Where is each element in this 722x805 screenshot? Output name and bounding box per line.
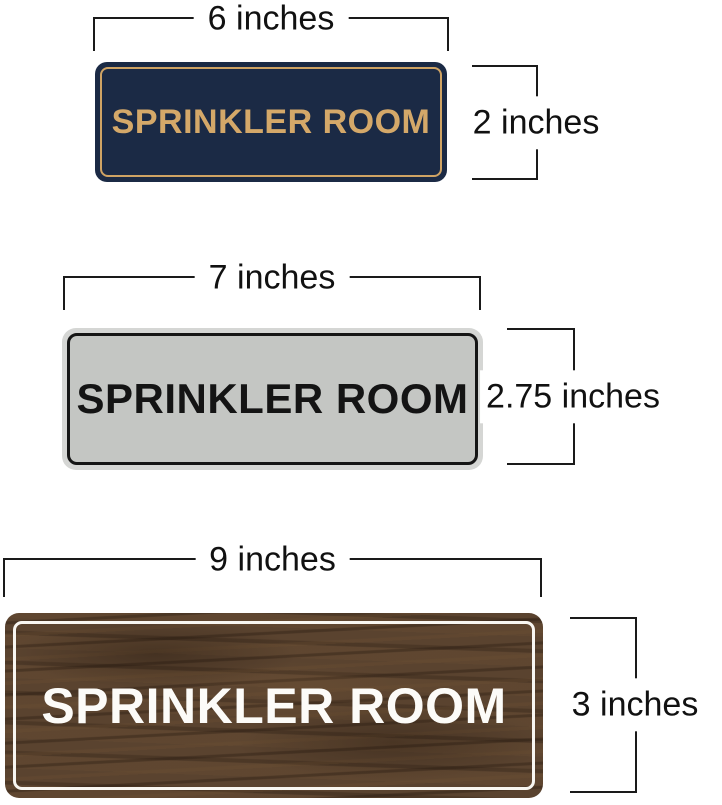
sign-text: SPRINKLER ROOM <box>41 681 506 731</box>
height-dimension-line: 2 inches <box>472 65 538 180</box>
sign-plate-walnut: SPRINKLER ROOM <box>5 613 543 798</box>
width-dimension-label: 6 inches <box>194 0 349 37</box>
sign-plate-navy: SPRINKLER ROOM <box>95 62 447 182</box>
black-frame-border: SPRINKLER ROOM <box>67 333 478 465</box>
width-dimension-label: 7 inches <box>195 259 350 296</box>
sign-text: SPRINKLER ROOM <box>112 105 431 139</box>
height-dimension-line: 2.75 inches <box>507 328 575 465</box>
height-dimension-line: 3 inches <box>570 617 637 793</box>
height-dimension-label: 2 inches <box>467 96 606 149</box>
width-dimension-line: 7 inches <box>63 276 481 310</box>
width-dimension-line: 9 inches <box>3 558 542 597</box>
width-dimension-label: 9 inches <box>195 541 350 578</box>
sign-plate-silver: SPRINKLER ROOM <box>62 328 483 470</box>
sign-text: SPRINKLER ROOM <box>76 378 468 420</box>
product-dimension-diagram: 6 inches SPRINKLER ROOM 2 inches 7 inche… <box>0 0 722 805</box>
width-dimension-line: 6 inches <box>93 17 449 51</box>
height-dimension-label: 2.75 inches <box>480 370 666 423</box>
height-dimension-label: 3 inches <box>566 678 705 731</box>
